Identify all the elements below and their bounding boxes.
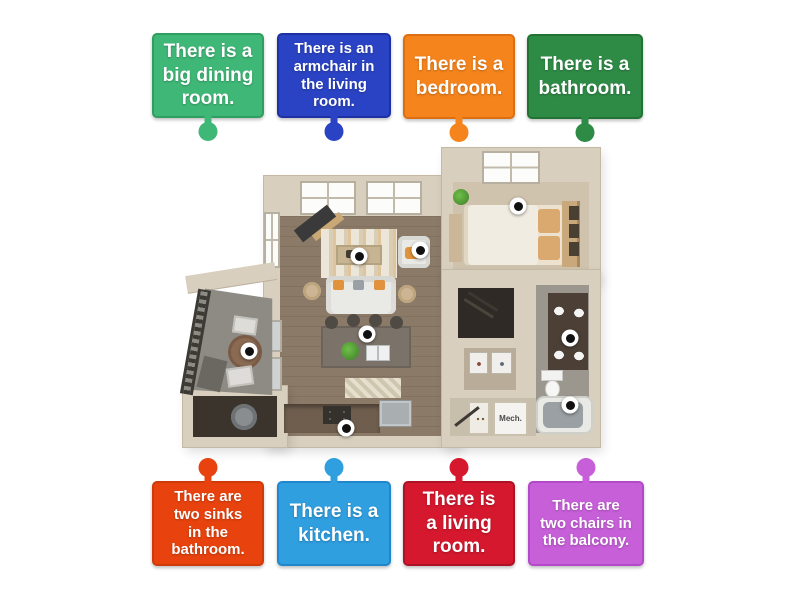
connector-dot xyxy=(199,122,218,141)
bedroom-window xyxy=(482,151,540,184)
kitchen-rug xyxy=(345,378,401,398)
side-table xyxy=(398,285,416,303)
dresser xyxy=(449,214,462,262)
sofa-pillow xyxy=(333,280,344,290)
card-kitchen[interactable]: There is a kitchen. xyxy=(277,481,391,566)
card-label: There is a big dining room. xyxy=(158,40,258,111)
bed-pillow xyxy=(538,209,560,233)
card-label: There is a kitchen. xyxy=(283,500,385,548)
fridge xyxy=(379,400,412,427)
connector-dot xyxy=(450,458,469,477)
card-label: There is a bathroom. xyxy=(533,53,637,101)
card-bedroom[interactable]: There is a bedroom. xyxy=(403,34,515,119)
island-sink xyxy=(366,345,390,361)
card-armchair-living-room[interactable]: There is an armchair in the living room. xyxy=(277,33,391,118)
bar-stool xyxy=(325,316,338,329)
card-label: There is a bedroom. xyxy=(409,53,509,101)
side-table xyxy=(303,282,321,300)
connector-dot xyxy=(325,122,344,141)
water-heater xyxy=(231,404,257,430)
sofa-pillow xyxy=(374,280,385,290)
pin-coffee-table[interactable] xyxy=(351,248,368,265)
connector-dot xyxy=(325,458,344,477)
connector-dot xyxy=(577,458,596,477)
connector-dot xyxy=(576,123,595,142)
card-big-dining-room[interactable]: There is a big dining room. xyxy=(152,33,264,118)
bar-stool xyxy=(369,314,382,327)
dryer xyxy=(491,352,512,374)
washer xyxy=(469,352,488,374)
balcony-chair xyxy=(226,365,254,387)
connector-dot xyxy=(450,123,469,142)
pin-bathtub[interactable] xyxy=(562,397,579,414)
card-label: There is an armchair in the living room. xyxy=(283,40,385,111)
pin-kitchen-island[interactable] xyxy=(359,326,376,343)
shoe-closet xyxy=(468,401,490,435)
side-window xyxy=(264,212,280,268)
mech-label: Mech. xyxy=(499,414,522,423)
card-bathroom[interactable]: There is a bathroom. xyxy=(527,34,643,119)
card-two-sinks-bathroom[interactable]: There are two sinks in the bathroom. xyxy=(152,481,264,566)
pin-bed[interactable] xyxy=(510,198,527,215)
living-room-window xyxy=(366,181,422,215)
bar-stool xyxy=(347,314,360,327)
wall-art xyxy=(569,206,579,220)
labelled-diagram-activity: Mech. There is a big dining room. There … xyxy=(0,0,800,600)
walk-in-closet xyxy=(458,288,514,338)
pin-balcony-table[interactable] xyxy=(241,343,258,360)
card-label: There are two chairs in the balcony. xyxy=(539,497,633,550)
connector-dot xyxy=(199,458,218,477)
pin-bathroom-vanity[interactable] xyxy=(562,330,579,347)
pin-armchair[interactable] xyxy=(412,242,429,259)
plant xyxy=(453,189,469,205)
mech-closet: Mech. xyxy=(493,401,528,436)
sofa-pillow xyxy=(353,280,364,290)
card-label: There is a living room. xyxy=(417,488,501,559)
card-label: There are two sinks in the bathroom. xyxy=(169,488,247,559)
plant xyxy=(341,342,359,360)
card-two-chairs-balcony[interactable]: There are two chairs in the balcony. xyxy=(528,481,644,566)
card-living-room[interactable]: There is a living room. xyxy=(403,481,515,566)
balcony-chair xyxy=(232,315,258,335)
pin-kitchen-counter[interactable] xyxy=(338,420,355,437)
bar-stool xyxy=(390,316,403,329)
